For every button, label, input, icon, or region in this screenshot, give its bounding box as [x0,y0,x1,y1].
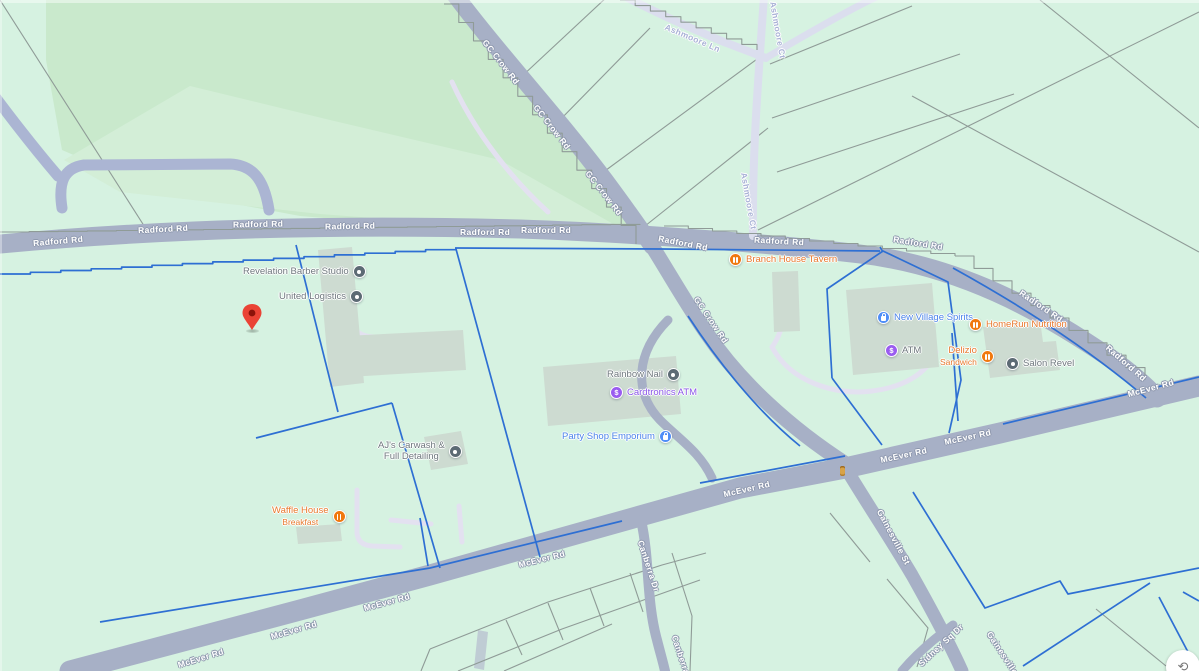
poi-label: Revelation Barber Studio [243,267,349,277]
poi-delizio-sandwich[interactable]: Delizio Sandwich [940,346,994,367]
store-icon [877,311,890,324]
poi-label: Branch House Tavern [746,255,837,265]
poi-cardtronics-atm[interactable]: $ Cardtronics ATM [610,386,697,399]
poi-party-shop-emporium[interactable]: Party Shop Emporium [562,430,672,443]
poi-label: Party Shop Emporium [562,432,655,442]
road-ashmoore-ln-east [766,0,876,58]
carwash-icon [449,445,462,458]
logistics-icon [350,290,363,303]
poi-united-logistics[interactable]: United Logistics [279,290,363,303]
map-canvas [0,0,1199,671]
road-mcever [70,386,1199,671]
road-ashmoore-ln [626,0,766,58]
poi-new-village-spirits[interactable]: New Village Spirits [877,311,973,324]
poi-label: AJ's Carwash & [378,441,445,451]
restaurant-icon [729,253,742,266]
building [772,271,800,332]
poi-label: Waffle House [272,506,329,516]
poi-label: ATM [902,346,921,356]
barber-icon [353,265,366,278]
poi-homerun-nutrition[interactable]: HomeRun Nutrition [969,318,1067,331]
road-gc-crow-south [652,246,846,464]
compass-icon: ⟲ [1178,659,1189,671]
road-gainesville [845,467,962,671]
poi-revelation-barber-studio[interactable]: Revelation Barber Studio [243,265,366,278]
poi-atm[interactable]: $ ATM [885,344,921,357]
road-canberra [641,520,665,671]
poi-label: Delizio [948,346,977,356]
road-loop [0,98,58,176]
nail-salon-icon [667,368,680,381]
poi-label: New Village Spirits [894,313,973,323]
poi-label: United Logistics [279,292,346,302]
map-viewport[interactable]: Radford Rd Radford Rd Radford Rd Radford… [0,0,1199,671]
poi-sublabel: Full Detailing [384,452,439,462]
poi-salon-revel[interactable]: Salon Revel [1006,357,1074,370]
atm-icon: $ [885,344,898,357]
compass-control[interactable]: ⟲ [1166,650,1199,671]
salon-icon [1006,357,1019,370]
map-edge-highlight [0,0,1199,3]
store-icon [659,430,672,443]
building [846,283,939,375]
poi-sublabel: Breakfast [282,517,318,527]
poi-rainbow-nail[interactable]: Rainbow Nail [607,368,680,381]
poi-branch-house-tavern[interactable]: Branch House Tavern [729,253,837,266]
map-pin[interactable] [241,303,263,333]
poi-label: Salon Revel [1023,359,1074,369]
poi-label: HomeRun Nutrition [986,320,1067,330]
sandwich-icon [981,350,994,363]
poi-label: Cardtronics ATM [627,388,697,398]
building [296,524,342,544]
nutrition-icon [969,318,982,331]
building [345,330,466,377]
poi-ajs-carwash[interactable]: AJ's Carwash & Full Detailing [378,441,462,462]
road-ashmoore-ct [753,0,764,236]
map-edge-highlight [0,0,2,671]
traffic-signal-icon[interactable] [840,466,845,476]
poi-label: Rainbow Nail [607,370,663,380]
poi-sublabel: Sandwich [940,357,977,367]
poi-waffle-house[interactable]: Waffle House Breakfast [272,506,346,527]
atm-icon: $ [610,386,623,399]
restaurant-icon [333,510,346,523]
